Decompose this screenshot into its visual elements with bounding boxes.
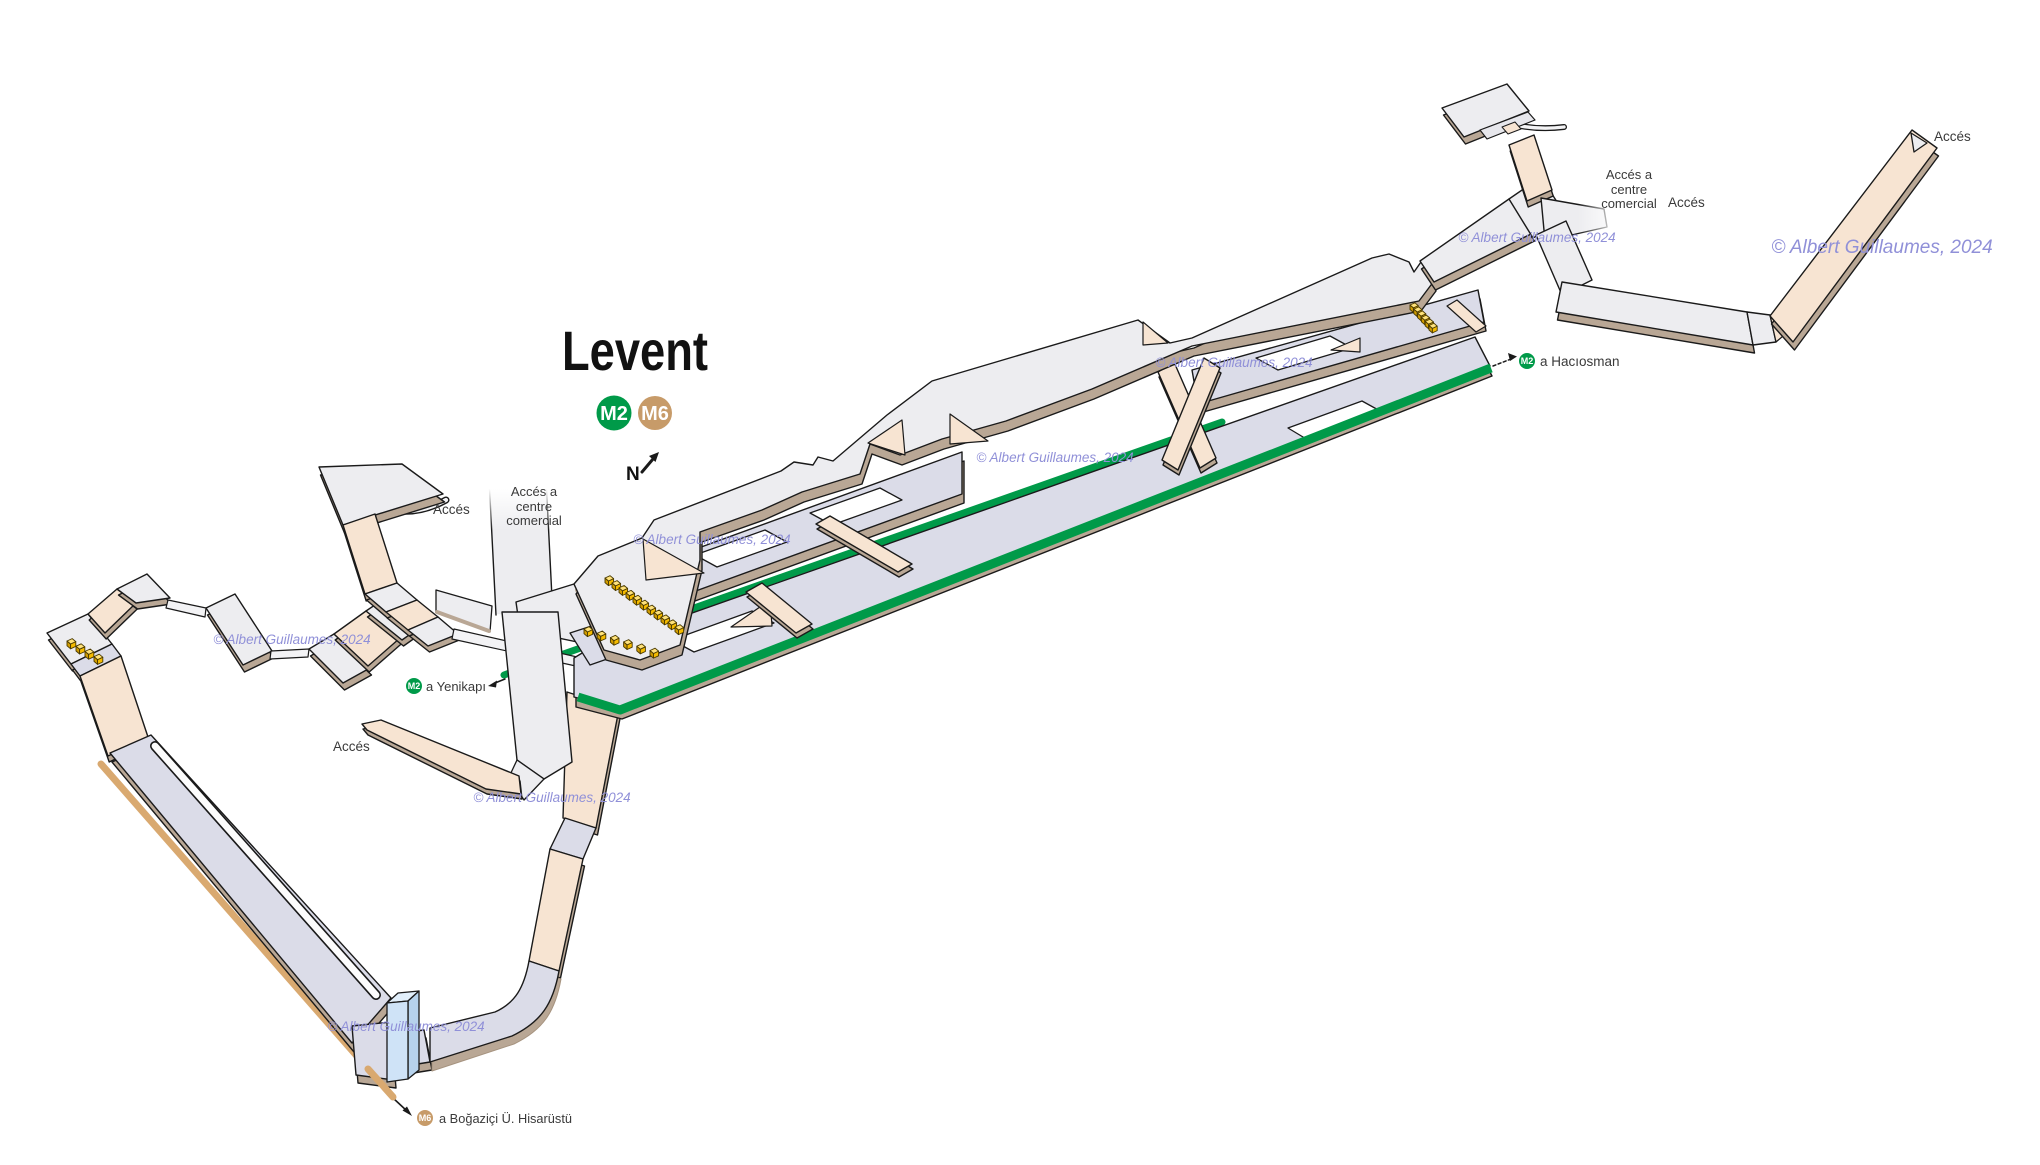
svg-text:a Yenikapı: a Yenikapı [426, 679, 486, 694]
svg-text:a Boğaziçi Ü. Hisarüstü: a Boğaziçi Ü. Hisarüstü [439, 1111, 572, 1126]
svg-text:M2: M2 [600, 403, 628, 425]
svg-text:Accés a: Accés a [511, 484, 558, 499]
svg-text:a Hacıosman: a Hacıosman [1540, 354, 1620, 369]
svg-text:© Albert Guillaumes, 2024: © Albert Guillaumes, 2024 [976, 450, 1133, 465]
svg-text:Accés: Accés [433, 502, 470, 517]
svg-text:centre: centre [516, 499, 552, 514]
svg-text:comercial: comercial [506, 513, 562, 528]
svg-text:centre: centre [1611, 182, 1647, 197]
svg-text:© Albert Guillaumes, 2024: © Albert Guillaumes, 2024 [473, 790, 630, 805]
svg-text:© Albert Guillaumes, 2024: © Albert Guillaumes, 2024 [327, 1019, 484, 1034]
svg-text:M6: M6 [419, 1113, 432, 1123]
svg-text:Accés: Accés [1934, 129, 1971, 144]
svg-text:N: N [626, 464, 640, 485]
svg-text:Levent: Levent [562, 319, 708, 382]
svg-text:M6: M6 [641, 403, 669, 425]
svg-text:© Albert Guillaumes, 2024: © Albert Guillaumes, 2024 [1771, 237, 1992, 258]
svg-text:© Albert Guillaumes, 2024: © Albert Guillaumes, 2024 [213, 632, 370, 647]
svg-text:Accés: Accés [333, 739, 370, 754]
svg-text:Accés a: Accés a [1606, 167, 1653, 182]
svg-text:© Albert Guillaumes, 2024: © Albert Guillaumes, 2024 [1155, 355, 1312, 370]
svg-text:M2: M2 [408, 681, 421, 691]
svg-text:M2: M2 [1521, 356, 1534, 366]
svg-text:Accés: Accés [1668, 195, 1705, 210]
svg-text:comercial: comercial [1601, 196, 1657, 211]
svg-text:© Albert Guillaumes, 2024: © Albert Guillaumes, 2024 [1458, 230, 1615, 245]
svg-text:© Albert Guillaumes, 2024: © Albert Guillaumes, 2024 [633, 532, 790, 547]
